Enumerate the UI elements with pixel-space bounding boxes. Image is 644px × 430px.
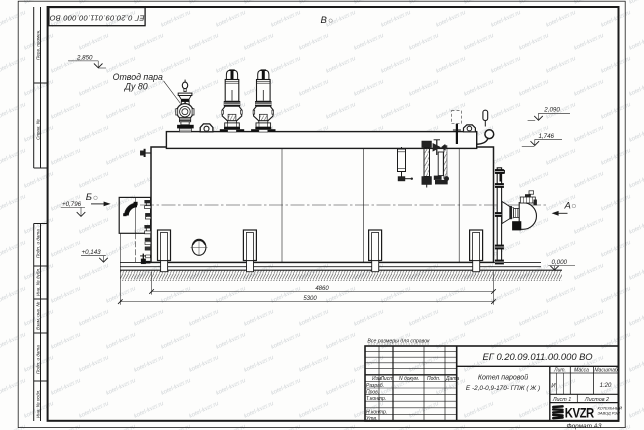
svg-text:Лист 1: Лист 1 (552, 397, 571, 403)
svg-text:Пров.: Пров. (366, 390, 379, 396)
svg-text:И: И (551, 384, 556, 390)
svg-text:kotel-kvzr.ru: kotel-kvzr.ru (215, 286, 247, 305)
svg-text:Подп.: Подп. (427, 376, 440, 382)
svg-text:kotel-kvzr.ru: kotel-kvzr.ru (270, 424, 302, 430)
svg-text:kotel-kvzr.ru: kotel-kvzr.ru (408, 79, 440, 98)
svg-text:kotel-kvzr.ru: kotel-kvzr.ru (78, 309, 110, 328)
svg-text:Подп. и дата: Подп. и дата (36, 229, 41, 258)
svg-text:kotel-kvzr.ru: kotel-kvzr.ru (298, 401, 330, 420)
svg-text:0,000: 0,000 (552, 259, 568, 266)
svg-text:kotel-kvzr.ru: kotel-kvzr.ru (270, 102, 302, 121)
svg-text:kotel-kvzr.ru: kotel-kvzr.ru (105, 240, 137, 259)
svg-text:kotel-kvzr.ru: kotel-kvzr.ru (628, 171, 644, 190)
svg-text:kotel-kvzr.ru: kotel-kvzr.ru (270, 332, 302, 351)
svg-text:kotel-kvzr.ru: kotel-kvzr.ru (50, 102, 82, 121)
svg-text:kotel-kvzr.ru: kotel-kvzr.ru (50, 424, 82, 430)
svg-text:kotel-kvzr.ru: kotel-kvzr.ru (628, 125, 644, 144)
svg-text:kotel-kvzr.ru: kotel-kvzr.ru (0, 10, 27, 29)
svg-text:Котел паровой: Котел паровой (478, 374, 528, 382)
svg-text:kotel-kvzr.ru: kotel-kvzr.ru (78, 263, 110, 282)
svg-text:kotel-kvzr.ru: kotel-kvzr.ru (628, 217, 644, 236)
svg-text:kotel-kvzr.ru: kotel-kvzr.ru (408, 33, 440, 52)
svg-text:kotel-kvzr.ru: kotel-kvzr.ru (50, 286, 82, 305)
svg-text:2,090: 2,090 (543, 107, 560, 114)
svg-text:kotel-kvzr.ru: kotel-kvzr.ru (78, 355, 110, 374)
svg-text:kotel-kvzr.ru: kotel-kvzr.ru (353, 79, 385, 98)
svg-text:kotel-kvzr.ru: kotel-kvzr.ru (573, 33, 605, 52)
svg-text:Перв. примен.: Перв. примен. (36, 29, 41, 60)
svg-text:kotel-kvzr.ru: kotel-kvzr.ru (215, 424, 247, 430)
svg-text:kotel-kvzr.ru: kotel-kvzr.ru (573, 125, 605, 144)
svg-text:kotel-kvzr.ru: kotel-kvzr.ru (78, 33, 110, 52)
svg-text:kotel-kvzr.ru: kotel-kvzr.ru (628, 79, 644, 98)
svg-text:kotel-kvzr.ru: kotel-kvzr.ru (628, 309, 644, 328)
svg-text:kotel-kvzr.ru: kotel-kvzr.ru (463, 33, 495, 52)
svg-text:kotel-kvzr.ru: kotel-kvzr.ru (573, 217, 605, 236)
svg-text:kotel-kvzr.ru: kotel-kvzr.ru (463, 401, 495, 420)
svg-text:kotel-kvzr.ru: kotel-kvzr.ru (490, 102, 522, 121)
svg-text:kotel-kvzr.ru: kotel-kvzr.ru (573, 263, 605, 282)
svg-text:Справ. №: Справ. № (36, 119, 41, 140)
svg-text:Разраб.: Разраб. (366, 383, 384, 389)
svg-text:kotel-kvzr.ru: kotel-kvzr.ru (545, 194, 577, 213)
svg-text:kotel-kvzr.ru: kotel-kvzr.ru (188, 401, 220, 420)
svg-text:kotel-kvzr.ru: kotel-kvzr.ru (600, 286, 632, 305)
svg-text:kotel-kvzr.ru: kotel-kvzr.ru (0, 332, 27, 351)
svg-text:kotel-kvzr.ru: kotel-kvzr.ru (490, 56, 522, 75)
svg-text:kotel-kvzr.ru: kotel-kvzr.ru (0, 286, 27, 305)
svg-text:kotel-kvzr.ru: kotel-kvzr.ru (105, 102, 137, 121)
svg-text:ЗАВОД РЭП: ЗАВОД РЭП (598, 411, 621, 416)
svg-text:kotel-kvzr.ru: kotel-kvzr.ru (353, 309, 385, 328)
svg-text:Дата: Дата (445, 376, 459, 382)
svg-text:kotel-kvzr.ru: kotel-kvzr.ru (628, 0, 644, 6)
svg-text:kotel-kvzr.ru: kotel-kvzr.ru (490, 148, 522, 167)
svg-text:kotel-kvzr.ru: kotel-kvzr.ru (105, 332, 137, 351)
svg-text:kotel-kvzr.ru: kotel-kvzr.ru (435, 10, 467, 29)
svg-text:kotel-kvzr.ru: kotel-kvzr.ru (490, 10, 522, 29)
svg-text:kotel-kvzr.ru: kotel-kvzr.ru (628, 355, 644, 374)
svg-text:kotel-kvzr.ru: kotel-kvzr.ru (463, 79, 495, 98)
svg-text:kotel-kvzr.ru: kotel-kvzr.ru (270, 56, 302, 75)
svg-text:kotel-kvzr.ru: kotel-kvzr.ru (0, 102, 27, 121)
svg-text:kotel-kvzr.ru: kotel-kvzr.ru (78, 125, 110, 144)
svg-text:kotel-kvzr.ru: kotel-kvzr.ru (408, 309, 440, 328)
svg-text:kotel-kvzr.ru: kotel-kvzr.ru (435, 56, 467, 75)
svg-text:Лист: Лист (380, 376, 394, 382)
svg-text:kotel-kvzr.ru: kotel-kvzr.ru (243, 309, 275, 328)
svg-text:1,746: 1,746 (539, 133, 555, 140)
svg-text:kotel-kvzr.ru: kotel-kvzr.ru (628, 33, 644, 52)
svg-text:kotel-kvzr.ru: kotel-kvzr.ru (133, 33, 165, 52)
svg-text:kotel-kvzr.ru: kotel-kvzr.ru (573, 309, 605, 328)
svg-text:5300: 5300 (303, 296, 317, 302)
svg-text:kotel-kvzr.ru: kotel-kvzr.ru (105, 378, 137, 397)
svg-text:kotel-kvzr.ru: kotel-kvzr.ru (325, 102, 357, 121)
svg-text:kotel-kvzr.ru: kotel-kvzr.ru (518, 79, 550, 98)
svg-text:kotel-kvzr.ru: kotel-kvzr.ru (545, 332, 577, 351)
svg-text:Т.контр.: Т.контр. (366, 396, 386, 402)
svg-text:kotel-kvzr.ru: kotel-kvzr.ru (435, 332, 467, 351)
svg-text:kotel-kvzr.ru: kotel-kvzr.ru (105, 194, 137, 213)
svg-text:kotel-kvzr.ru: kotel-kvzr.ru (435, 424, 467, 430)
svg-text:kotel-kvzr.ru: kotel-kvzr.ru (325, 332, 357, 351)
svg-text:kotel-kvzr.ru: kotel-kvzr.ru (325, 286, 357, 305)
svg-text:А: А (564, 200, 571, 211)
svg-text:kotel-kvzr.ru: kotel-kvzr.ru (50, 378, 82, 397)
svg-text:kotel-kvzr.ru: kotel-kvzr.ru (545, 286, 577, 305)
svg-text:kotel-kvzr.ru: kotel-kvzr.ru (545, 56, 577, 75)
svg-text:kotel-kvzr.ru: kotel-kvzr.ru (188, 33, 220, 52)
svg-text:kotel-kvzr.ru: kotel-kvzr.ru (380, 56, 412, 75)
svg-text:kotel-kvzr.ru: kotel-kvzr.ru (600, 194, 632, 213)
svg-text:kotel-kvzr.ru: kotel-kvzr.ru (298, 79, 330, 98)
svg-text:kotel-kvzr.ru: kotel-kvzr.ru (160, 378, 192, 397)
svg-text:kotel-kvzr.ru: kotel-kvzr.ru (600, 148, 632, 167)
svg-text:kotel-kvzr.ru: kotel-kvzr.ru (133, 355, 165, 374)
svg-text:kotel-kvzr.ru: kotel-kvzr.ru (160, 10, 192, 29)
svg-text:N докум.: N докум. (399, 376, 419, 382)
svg-text:kotel-kvzr.ru: kotel-kvzr.ru (380, 424, 412, 430)
svg-text:kotel-kvzr.ru: kotel-kvzr.ru (160, 56, 192, 75)
svg-text:kotel-kvzr.ru: kotel-kvzr.ru (0, 424, 27, 430)
svg-text:kotel-kvzr.ru: kotel-kvzr.ru (133, 401, 165, 420)
svg-text:kotel-kvzr.ru: kotel-kvzr.ru (628, 263, 644, 282)
svg-text:ЕГ 0.20.09.011.00.000 ВО: ЕГ 0.20.09.011.00.000 ВО (482, 351, 593, 362)
svg-text:kotel-kvzr.ru: kotel-kvzr.ru (573, 171, 605, 190)
svg-text:kotel-kvzr.ru: kotel-kvzr.ru (545, 240, 577, 259)
svg-text:kotel-kvzr.ru: kotel-kvzr.ru (298, 33, 330, 52)
svg-text:kotel-kvzr.ru: kotel-kvzr.ru (463, 309, 495, 328)
svg-text:kotel-kvzr.ru: kotel-kvzr.ru (50, 332, 82, 351)
svg-text:kotel-kvzr.ru: kotel-kvzr.ru (23, 171, 55, 190)
svg-text:Лит.: Лит. (553, 368, 566, 374)
svg-text:+0,796: +0,796 (62, 201, 82, 208)
svg-text:kotel-kvzr.ru: kotel-kvzr.ru (353, 33, 385, 52)
svg-text:Взам. инв. №: Взам. инв. № (36, 302, 41, 330)
svg-text:Масштаб: Масштаб (594, 368, 618, 374)
svg-text:2,850: 2,850 (76, 55, 93, 62)
svg-text:kotel-kvzr.ru: kotel-kvzr.ru (298, 309, 330, 328)
svg-text:kotel-kvzr.ru: kotel-kvzr.ru (600, 332, 632, 351)
svg-text:kotel-kvzr.ru: kotel-kvzr.ru (23, 79, 55, 98)
svg-text:kotel-kvzr.ru: kotel-kvzr.ru (0, 56, 27, 75)
svg-text:kotel-kvzr.ru: kotel-kvzr.ru (105, 424, 137, 430)
svg-text:В: В (321, 15, 328, 26)
svg-text:Н.контр.: Н.контр. (366, 410, 387, 416)
svg-text:kotel-kvzr.ru: kotel-kvzr.ru (215, 378, 247, 397)
svg-text:kotel-kvzr.ru: kotel-kvzr.ru (380, 10, 412, 29)
svg-text:kotel-kvzr.ru: kotel-kvzr.ru (215, 332, 247, 351)
svg-text:kotel-kvzr.ru: kotel-kvzr.ru (0, 240, 27, 259)
svg-text:Формат А3: Формат А3 (567, 423, 602, 430)
svg-text:kotel-kvzr.ru: kotel-kvzr.ru (545, 10, 577, 29)
svg-text:kotel-kvzr.ru: kotel-kvzr.ru (78, 217, 110, 236)
svg-text:kotel-kvzr.ru: kotel-kvzr.ru (243, 401, 275, 420)
svg-text:kotel-kvzr.ru: kotel-kvzr.ru (600, 10, 632, 29)
svg-text:Инв. № подл.: Инв. № подл. (36, 389, 41, 418)
svg-text:kotel-kvzr.ru: kotel-kvzr.ru (78, 79, 110, 98)
svg-text:kotel-kvzr.ru: kotel-kvzr.ru (490, 424, 522, 430)
svg-text:kotel-kvzr.ru: kotel-kvzr.ru (50, 240, 82, 259)
svg-text:Утв.: Утв. (366, 416, 377, 422)
svg-text:Подп. и дата: Подп. и дата (36, 345, 41, 374)
svg-text:kotel-kvzr.ru: kotel-kvzr.ru (298, 355, 330, 374)
svg-text:kotel-kvzr.ru: kotel-kvzr.ru (518, 401, 550, 420)
svg-text:Масса: Масса (574, 368, 589, 374)
svg-text:kotel-kvzr.ru: kotel-kvzr.ru (270, 378, 302, 397)
svg-text:kotel-kvzr.ru: kotel-kvzr.ru (215, 10, 247, 29)
svg-text:kotel-kvzr.ru: kotel-kvzr.ru (160, 424, 192, 430)
svg-text:kotel-kvzr.ru: kotel-kvzr.ru (188, 309, 220, 328)
svg-text:kotel-kvzr.ru: kotel-kvzr.ru (600, 102, 632, 121)
svg-text:kotel-kvzr.ru: kotel-kvzr.ru (0, 378, 27, 397)
svg-text:kotel-kvzr.ru: kotel-kvzr.ru (600, 56, 632, 75)
svg-text:kotel-kvzr.ru: kotel-kvzr.ru (133, 309, 165, 328)
svg-text:kotel-kvzr.ru: kotel-kvzr.ru (160, 286, 192, 305)
svg-text:kotel-kvzr.ru: kotel-kvzr.ru (160, 332, 192, 351)
svg-text:kotel-kvzr.ru: kotel-kvzr.ru (380, 286, 412, 305)
svg-text:kotel-kvzr.ru: kotel-kvzr.ru (78, 401, 110, 420)
svg-text:kotel-kvzr.ru: kotel-kvzr.ru (243, 355, 275, 374)
svg-text:kotel-kvzr.ru: kotel-kvzr.ru (105, 148, 137, 167)
svg-text:kotel-kvzr.ru: kotel-kvzr.ru (545, 148, 577, 167)
svg-text:kotel-kvzr.ru: kotel-kvzr.ru (50, 148, 82, 167)
svg-text:kotel-kvzr.ru: kotel-kvzr.ru (78, 171, 110, 190)
svg-text:4860: 4860 (315, 286, 329, 292)
svg-text:+0,143: +0,143 (82, 249, 102, 256)
svg-text:kotel-kvzr.ru: kotel-kvzr.ru (243, 33, 275, 52)
svg-text:kotel-kvzr.ru: kotel-kvzr.ru (518, 309, 550, 328)
svg-text:Ду 80: Ду 80 (124, 81, 148, 91)
svg-text:kotel-kvzr.ru: kotel-kvzr.ru (518, 33, 550, 52)
svg-text:Инв. № дубл.: Инв. № дубл. (36, 268, 41, 296)
svg-text:kotel-kvzr.ru: kotel-kvzr.ru (600, 424, 632, 430)
svg-text:kotel-kvzr.ru: kotel-kvzr.ru (518, 171, 550, 190)
svg-text:kotel-kvzr.ru: kotel-kvzr.ru (105, 286, 137, 305)
svg-text:kotel-kvzr.ru: kotel-kvzr.ru (490, 332, 522, 351)
svg-text:kotel-kvzr.ru: kotel-kvzr.ru (270, 10, 302, 29)
svg-text:kotel-kvzr.ru: kotel-kvzr.ru (325, 56, 357, 75)
svg-text:Листов 2: Листов 2 (584, 397, 609, 403)
svg-text:kotel-kvzr.ru: kotel-kvzr.ru (380, 102, 412, 121)
svg-text:kotel-kvzr.ru: kotel-kvzr.ru (0, 148, 27, 167)
svg-text:kotel-kvzr.ru: kotel-kvzr.ru (573, 79, 605, 98)
svg-text:kotel-kvzr.ru: kotel-kvzr.ru (600, 240, 632, 259)
svg-text:kotel-kvzr.ru: kotel-kvzr.ru (490, 286, 522, 305)
svg-text:1:20: 1:20 (600, 383, 612, 389)
svg-text:KVZR: KVZR (565, 404, 595, 421)
svg-text:kotel-kvzr.ru: kotel-kvzr.ru (133, 125, 165, 144)
svg-text:kotel-kvzr.ru: kotel-kvzr.ru (325, 378, 357, 397)
svg-text:Б: Б (86, 192, 92, 203)
svg-text:Все размеры для справок: Все размеры для справок (367, 339, 430, 345)
svg-text:kotel-kvzr.ru: kotel-kvzr.ru (435, 286, 467, 305)
svg-text:kotel-kvzr.ru: kotel-kvzr.ru (270, 286, 302, 305)
svg-text:ЕГ 0.20.09.011.00.000 ВО: ЕГ 0.20.09.011.00.000 ВО (49, 13, 144, 22)
svg-text:kotel-kvzr.ru: kotel-kvzr.ru (325, 424, 357, 430)
svg-text:Е -2,0-0,9-170- ГПЖ ( Ж ): Е -2,0-0,9-170- ГПЖ ( Ж ) (466, 385, 540, 392)
svg-text:kotel-kvzr.ru: kotel-kvzr.ru (628, 401, 644, 420)
svg-text:kotel-kvzr.ru: kotel-kvzr.ru (0, 194, 27, 213)
svg-text:kotel-kvzr.ru: kotel-kvzr.ru (188, 79, 220, 98)
svg-text:Отвод пара: Отвод пара (113, 72, 163, 82)
svg-text:kotel-kvzr.ru: kotel-kvzr.ru (188, 355, 220, 374)
